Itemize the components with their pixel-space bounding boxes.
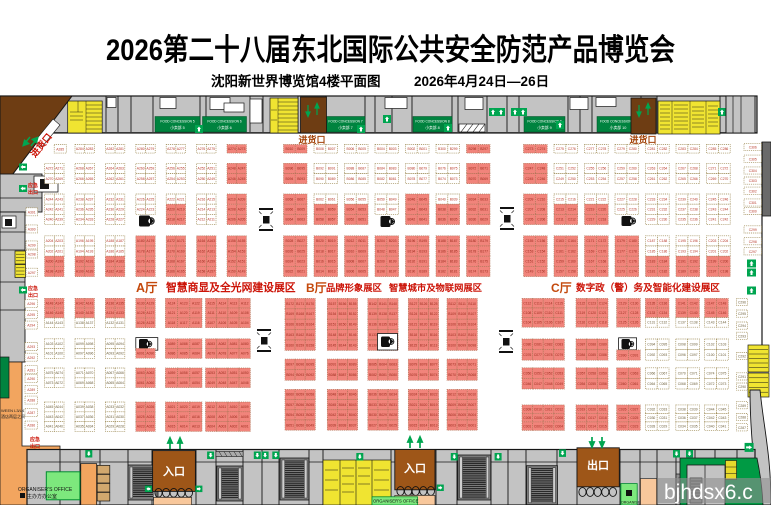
svg-text:主办方办公室: 主办方办公室 [27, 493, 57, 500]
svg-text:C厅: C厅 [551, 281, 572, 295]
svg-text:B123: B123 [420, 312, 428, 316]
svg-text:C142: C142 [690, 301, 698, 305]
svg-text:A170: A170 [167, 249, 175, 253]
svg-text:A210: A210 [228, 197, 236, 201]
svg-text:B101: B101 [468, 333, 476, 337]
svg-text:B031: B031 [480, 208, 488, 212]
svg-text:C247: C247 [525, 167, 533, 171]
svg-text:C261: C261 [647, 177, 655, 181]
svg-text:C252: C252 [568, 167, 576, 171]
svg-text:A248: A248 [228, 167, 236, 171]
svg-text:B078: B078 [407, 177, 415, 181]
svg-text:A239: A239 [55, 218, 63, 222]
svg-text:A282: A282 [106, 147, 114, 151]
svg-text:C174: C174 [629, 270, 637, 274]
svg-text:A184: A184 [106, 260, 114, 264]
svg-text:C077: C077 [534, 353, 542, 357]
svg-text:B009: B009 [297, 147, 305, 151]
svg-text:C168: C168 [598, 260, 606, 264]
svg-text:A097: A097 [76, 352, 84, 356]
svg-text:A240: A240 [46, 218, 54, 222]
svg-text:A045: A045 [46, 405, 54, 409]
svg-text:C100: C100 [707, 353, 715, 357]
svg-text:A074: A074 [55, 371, 63, 375]
svg-text:B085: B085 [358, 177, 366, 181]
svg-text:B046: B046 [349, 393, 357, 397]
svg-text:A195: A195 [86, 239, 94, 243]
svg-text:B047: B047 [339, 393, 347, 397]
svg-text:C238: C238 [690, 208, 698, 212]
svg-text:A077: A077 [230, 352, 238, 356]
svg-text:C281: C281 [647, 147, 655, 151]
svg-text:C258: C258 [629, 177, 637, 181]
svg-text:A088: A088 [180, 342, 188, 346]
svg-text:A068: A068 [86, 381, 94, 385]
svg-text:智慧城市及物联网展区: 智慧城市及物联网展区 [389, 282, 483, 293]
svg-text:C202: C202 [720, 249, 728, 253]
svg-text:B025: B025 [297, 249, 305, 253]
svg-text:A112: A112 [241, 301, 249, 305]
svg-text:C182: C182 [659, 270, 667, 274]
svg-text:C074: C074 [707, 371, 715, 375]
svg-text:B012: B012 [448, 393, 456, 397]
svg-text:A254: A254 [167, 177, 175, 181]
svg-text:A249: A249 [207, 177, 215, 181]
svg-text:C066: C066 [647, 371, 655, 375]
svg-text:C193: C193 [678, 249, 686, 253]
svg-text:B190: B190 [407, 270, 415, 274]
svg-text:A083: A083 [207, 342, 215, 346]
svg-text:C008: C008 [555, 416, 563, 420]
svg-text:A084: A084 [192, 352, 200, 356]
svg-text:2026年4月24日—26日: 2026年4月24日—26日 [414, 73, 549, 89]
svg-text:C080: C080 [523, 343, 531, 347]
svg-text:B117: B117 [420, 333, 428, 337]
svg-text:C248: C248 [537, 167, 545, 171]
svg-text:B010: B010 [468, 393, 476, 397]
svg-text:A183: A183 [116, 260, 124, 264]
svg-text:C058: C058 [588, 371, 596, 375]
svg-text:C163: C163 [556, 239, 564, 243]
svg-text:A018: A018 [168, 415, 176, 419]
svg-text:B153: B153 [339, 312, 347, 316]
svg-text:A284: A284 [76, 147, 84, 151]
svg-text:B139: B139 [369, 312, 377, 316]
svg-text:A228: A228 [106, 218, 114, 222]
svg-text:A039: A039 [76, 405, 84, 409]
svg-text:A099: A099 [76, 342, 84, 346]
svg-text:B050: B050 [377, 197, 385, 201]
svg-text:A154: A154 [228, 249, 236, 253]
svg-text:B045: B045 [419, 197, 427, 201]
svg-text:C002: C002 [534, 424, 542, 428]
svg-text:C102: C102 [707, 343, 715, 347]
svg-text:B048: B048 [328, 393, 336, 397]
svg-text:B114: B114 [420, 343, 428, 347]
svg-text:C115: C115 [555, 301, 563, 305]
svg-text:B051: B051 [358, 218, 366, 222]
svg-text:A040: A040 [55, 425, 63, 429]
svg-text:B126: B126 [420, 302, 428, 306]
svg-text:B135: B135 [379, 323, 387, 327]
svg-text:B298: B298 [468, 147, 476, 151]
svg-text:C006: C006 [534, 416, 542, 420]
svg-text:A030: A030 [116, 415, 124, 419]
svg-text:A216: A216 [197, 197, 205, 201]
svg-text:C222: C222 [598, 197, 606, 201]
svg-text:bjhdsx6.c: bjhdsx6.c [664, 481, 753, 504]
svg-text:A130: A130 [137, 301, 145, 305]
svg-text:B152: B152 [349, 312, 357, 316]
svg-text:C239: C239 [678, 197, 686, 201]
svg-text:A212: A212 [197, 218, 205, 222]
svg-text:C057: C057 [577, 371, 585, 375]
svg-text:A199: A199 [55, 260, 63, 264]
svg-text:C173: C173 [617, 270, 625, 274]
svg-text:A293: A293 [27, 345, 35, 349]
svg-text:B096: B096 [285, 167, 293, 171]
svg-text:A295: A295 [27, 313, 35, 317]
svg-text:B091: B091 [328, 363, 336, 367]
svg-text:B094: B094 [285, 177, 293, 181]
svg-text:B169: B169 [286, 312, 294, 316]
svg-text:C103: C103 [718, 343, 726, 347]
svg-text:B009: B009 [358, 249, 366, 253]
svg-text:C262: C262 [659, 177, 667, 181]
svg-text:B070: B070 [448, 373, 456, 377]
svg-text:B156: B156 [339, 302, 347, 306]
svg-text:A111: A111 [207, 311, 214, 315]
svg-text:C004: C004 [555, 424, 563, 428]
svg-text:A223: A223 [146, 208, 154, 212]
svg-text:A291: A291 [27, 368, 35, 372]
svg-text:A246: A246 [228, 177, 236, 181]
svg-text:B038: B038 [438, 208, 446, 212]
svg-text:A073: A073 [46, 381, 54, 385]
svg-text:A005: A005 [241, 415, 249, 419]
svg-text:B095: B095 [297, 167, 305, 171]
svg-text:C111: C111 [555, 311, 563, 315]
svg-text:A159: A159 [207, 260, 215, 264]
svg-text:A148: A148 [46, 301, 54, 305]
svg-text:A048: A048 [218, 381, 226, 385]
svg-text:C086: C086 [599, 353, 607, 357]
svg-text:A028: A028 [116, 425, 124, 429]
svg-text:B057: B057 [286, 403, 294, 407]
svg-text:A104: A104 [241, 321, 249, 325]
svg-text:A001: A001 [241, 425, 249, 429]
svg-text:B041: B041 [339, 413, 347, 417]
svg-text:B024: B024 [285, 260, 293, 264]
svg-text:A158: A158 [197, 270, 205, 274]
svg-text:A292: A292 [27, 356, 35, 360]
svg-text:B006: B006 [346, 147, 354, 151]
svg-text:B175: B175 [480, 260, 488, 264]
svg-text:B057: B057 [328, 218, 336, 222]
svg-text:B027: B027 [369, 423, 377, 427]
svg-text:B002: B002 [458, 423, 466, 427]
svg-text:应急: 应急 [28, 285, 38, 292]
svg-text:C178: C178 [629, 249, 637, 253]
svg-text:A017: A017 [180, 415, 188, 419]
svg-text:A286: A286 [27, 424, 35, 428]
svg-text:A009: A009 [241, 405, 249, 409]
svg-text:C270: C270 [720, 177, 728, 181]
svg-text:C273: C273 [525, 147, 533, 151]
svg-text:A055: A055 [180, 381, 188, 385]
svg-text:C180: C180 [629, 239, 637, 243]
svg-text:C096: C096 [678, 353, 686, 357]
svg-text:B166: B166 [286, 323, 294, 327]
svg-text:C199: C199 [708, 260, 716, 264]
svg-text:C018: C018 [599, 416, 607, 420]
svg-text:C138: C138 [690, 321, 698, 325]
svg-text:C079: C079 [555, 353, 563, 357]
svg-text:B023: B023 [297, 260, 305, 264]
svg-text:B146: B146 [349, 333, 357, 337]
svg-text:A269: A269 [55, 177, 63, 181]
svg-text:A152: A152 [228, 260, 236, 264]
svg-text:小卖部 5: 小卖部 5 [170, 125, 185, 130]
svg-text:A011: A011 [219, 405, 227, 409]
svg-text:B007: B007 [358, 260, 366, 264]
svg-text:A058: A058 [180, 371, 188, 375]
svg-text:A003: A003 [218, 425, 226, 429]
svg-text:B162: B162 [296, 333, 304, 337]
svg-text:C148: C148 [718, 301, 726, 305]
svg-text:A060: A060 [146, 381, 154, 385]
svg-text:B001: B001 [419, 147, 427, 151]
svg-text:A266: A266 [76, 177, 84, 181]
svg-text:A038: A038 [86, 405, 94, 409]
svg-text:B299: B299 [450, 147, 458, 151]
svg-text:A271: A271 [55, 167, 63, 171]
svg-text:B073: B073 [448, 363, 456, 367]
svg-text:B052: B052 [346, 218, 354, 222]
svg-text:B016: B016 [316, 260, 324, 264]
svg-text:C031: C031 [659, 416, 667, 420]
svg-text:C235: C235 [678, 218, 686, 222]
svg-text:B136: B136 [369, 323, 377, 327]
svg-text:B070: B070 [468, 177, 476, 181]
svg-text:C009: C009 [523, 407, 531, 411]
svg-text:C200: C200 [720, 260, 728, 264]
svg-text:C020: C020 [588, 407, 596, 411]
svg-text:A108: A108 [241, 311, 249, 315]
svg-text:C198: C198 [720, 270, 728, 274]
svg-text:A115: A115 [207, 301, 215, 305]
svg-text:A013: A013 [192, 425, 200, 429]
svg-text:B034: B034 [389, 393, 397, 397]
svg-text:A226: A226 [137, 197, 145, 201]
svg-text:C289: C289 [738, 404, 746, 408]
svg-text:B031: B031 [389, 403, 397, 407]
svg-text:A279: A279 [146, 147, 154, 151]
svg-text:A072: A072 [55, 381, 63, 385]
svg-text:A280: A280 [137, 147, 145, 151]
svg-text:C209: C209 [525, 197, 533, 201]
svg-text:C053: C053 [555, 371, 563, 375]
svg-text:A141: A141 [86, 301, 94, 305]
svg-text:C234: C234 [659, 197, 667, 201]
svg-text:A105: A105 [230, 321, 238, 325]
svg-text:A274: A274 [228, 147, 236, 151]
svg-text:C160: C160 [568, 260, 576, 264]
svg-text:A056: A056 [168, 381, 176, 385]
svg-text:C296: C296 [738, 301, 746, 305]
svg-text:C095: C095 [659, 343, 667, 347]
svg-text:A276: A276 [197, 147, 205, 151]
svg-text:C019: C019 [577, 407, 585, 411]
svg-text:B006: B006 [448, 413, 456, 417]
svg-text:A024: A024 [146, 415, 154, 419]
svg-text:C107: C107 [555, 321, 563, 325]
svg-text:C164: C164 [568, 239, 576, 243]
svg-text:B043: B043 [349, 403, 357, 407]
svg-text:B072: B072 [458, 363, 466, 367]
svg-text:B145: B145 [328, 343, 336, 347]
svg-text:A267: A267 [86, 167, 94, 171]
svg-text:A123: A123 [180, 301, 188, 305]
svg-text:C143: C143 [707, 321, 715, 325]
svg-text:B077: B077 [419, 177, 427, 181]
svg-text:B088: B088 [328, 373, 336, 377]
svg-text:B008: B008 [458, 403, 466, 407]
svg-text:B071: B071 [480, 167, 488, 171]
svg-text:进货口: 进货口 [298, 134, 325, 145]
svg-text:B059: B059 [296, 393, 304, 397]
svg-text:B017: B017 [420, 413, 428, 417]
svg-text:B075: B075 [420, 373, 428, 377]
svg-text:B005: B005 [358, 147, 366, 151]
svg-text:C047: C047 [534, 382, 542, 386]
svg-text:C048: C048 [545, 382, 553, 386]
svg-text:B003: B003 [389, 147, 397, 151]
svg-text:B056: B056 [296, 403, 304, 407]
svg-text:B011: B011 [458, 393, 466, 397]
svg-text:A132: A132 [106, 321, 114, 325]
svg-text:A142: A142 [76, 301, 84, 305]
svg-text:A209: A209 [238, 197, 246, 201]
svg-text:A188: A188 [106, 239, 114, 243]
svg-text:B105: B105 [458, 323, 466, 327]
svg-text:A044: A044 [55, 405, 63, 409]
svg-text:B014: B014 [420, 423, 428, 427]
svg-text:B164: B164 [306, 323, 314, 327]
svg-text:A107: A107 [207, 321, 215, 325]
svg-text:C278: C278 [598, 147, 606, 151]
svg-text:A020: A020 [180, 405, 188, 409]
svg-text:C094: C094 [647, 343, 655, 347]
svg-text:B086: B086 [346, 177, 354, 181]
svg-text:C215: C215 [556, 197, 564, 201]
svg-text:C218: C218 [598, 218, 606, 222]
svg-text:B040: B040 [349, 413, 357, 417]
svg-text:C012: C012 [555, 407, 563, 411]
svg-text:B144: B144 [339, 343, 347, 347]
svg-text:C062: C062 [619, 371, 627, 375]
svg-text:B173: B173 [480, 270, 488, 274]
svg-text:B004: B004 [377, 147, 385, 151]
svg-text:C277: C277 [586, 147, 594, 151]
svg-text:C016: C016 [577, 416, 585, 420]
svg-text:A201: A201 [55, 249, 63, 253]
svg-text:C243: C243 [708, 208, 716, 212]
svg-text:C059: C059 [599, 371, 607, 375]
svg-text:C301: C301 [749, 201, 757, 205]
svg-text:C276: C276 [568, 147, 576, 151]
svg-text:B032: B032 [379, 403, 387, 407]
svg-text:C017: C017 [588, 416, 596, 420]
svg-text:A027: A027 [137, 405, 145, 409]
svg-text:B041: B041 [419, 218, 427, 222]
svg-text:C282: C282 [659, 147, 667, 151]
svg-text:B297: B297 [480, 147, 488, 151]
svg-text:C093: C093 [659, 353, 667, 357]
svg-text:C158: C158 [568, 270, 576, 274]
svg-text:A219: A219 [177, 208, 185, 212]
svg-text:A037: A037 [76, 415, 84, 419]
svg-text:C134: C134 [659, 311, 667, 315]
svg-text:C136: C136 [659, 301, 667, 305]
svg-text:C051: C051 [534, 371, 542, 375]
svg-text:C003: C003 [545, 424, 553, 428]
svg-text:A232: A232 [106, 197, 114, 201]
svg-text:C063: C063 [630, 371, 638, 375]
svg-text:B022: B022 [285, 270, 293, 274]
svg-text:C029: C029 [659, 424, 667, 428]
svg-text:A102: A102 [55, 342, 63, 346]
svg-text:C027: C027 [630, 407, 638, 411]
svg-text:A290: A290 [27, 377, 35, 381]
svg-text:A121: A121 [168, 311, 176, 315]
svg-text:B178: B178 [468, 249, 476, 253]
svg-text:C043: C043 [718, 416, 726, 420]
svg-text:C056: C056 [599, 382, 607, 386]
svg-text:C035: C035 [690, 424, 698, 428]
svg-text:A114: A114 [219, 301, 227, 305]
svg-text:A094: A094 [116, 342, 124, 346]
svg-text:C159: C159 [556, 260, 564, 264]
svg-text:C046: C046 [523, 382, 531, 386]
svg-text:A118: A118 [168, 321, 176, 325]
svg-text:A211: A211 [207, 218, 215, 222]
svg-text:B089: B089 [328, 177, 336, 181]
svg-text:A057: A057 [192, 371, 200, 375]
svg-text:B012: B012 [346, 239, 354, 243]
svg-text:C082: C082 [545, 343, 553, 347]
svg-text:A002: A002 [230, 425, 238, 429]
svg-text:C036: C036 [678, 416, 686, 420]
svg-text:C144: C144 [718, 321, 726, 325]
svg-text:A225: A225 [146, 197, 154, 201]
svg-text:A224: A224 [137, 208, 145, 212]
svg-text:C171: C171 [586, 239, 594, 243]
svg-text:C087: C087 [577, 343, 585, 347]
svg-text:A168: A168 [167, 260, 175, 264]
svg-text:A134: A134 [106, 311, 114, 315]
svg-text:C052: C052 [545, 371, 553, 375]
svg-text:A091: A091 [137, 352, 145, 356]
svg-text:A066: A066 [116, 371, 124, 375]
svg-text:C105: C105 [534, 321, 542, 325]
svg-text:A172: A172 [167, 239, 175, 243]
svg-text:A136: A136 [106, 301, 114, 305]
svg-text:B094: B094 [286, 373, 294, 377]
svg-text:C237: C237 [678, 208, 686, 212]
svg-text:C212: C212 [568, 218, 576, 222]
svg-text:C169: C169 [586, 249, 594, 253]
